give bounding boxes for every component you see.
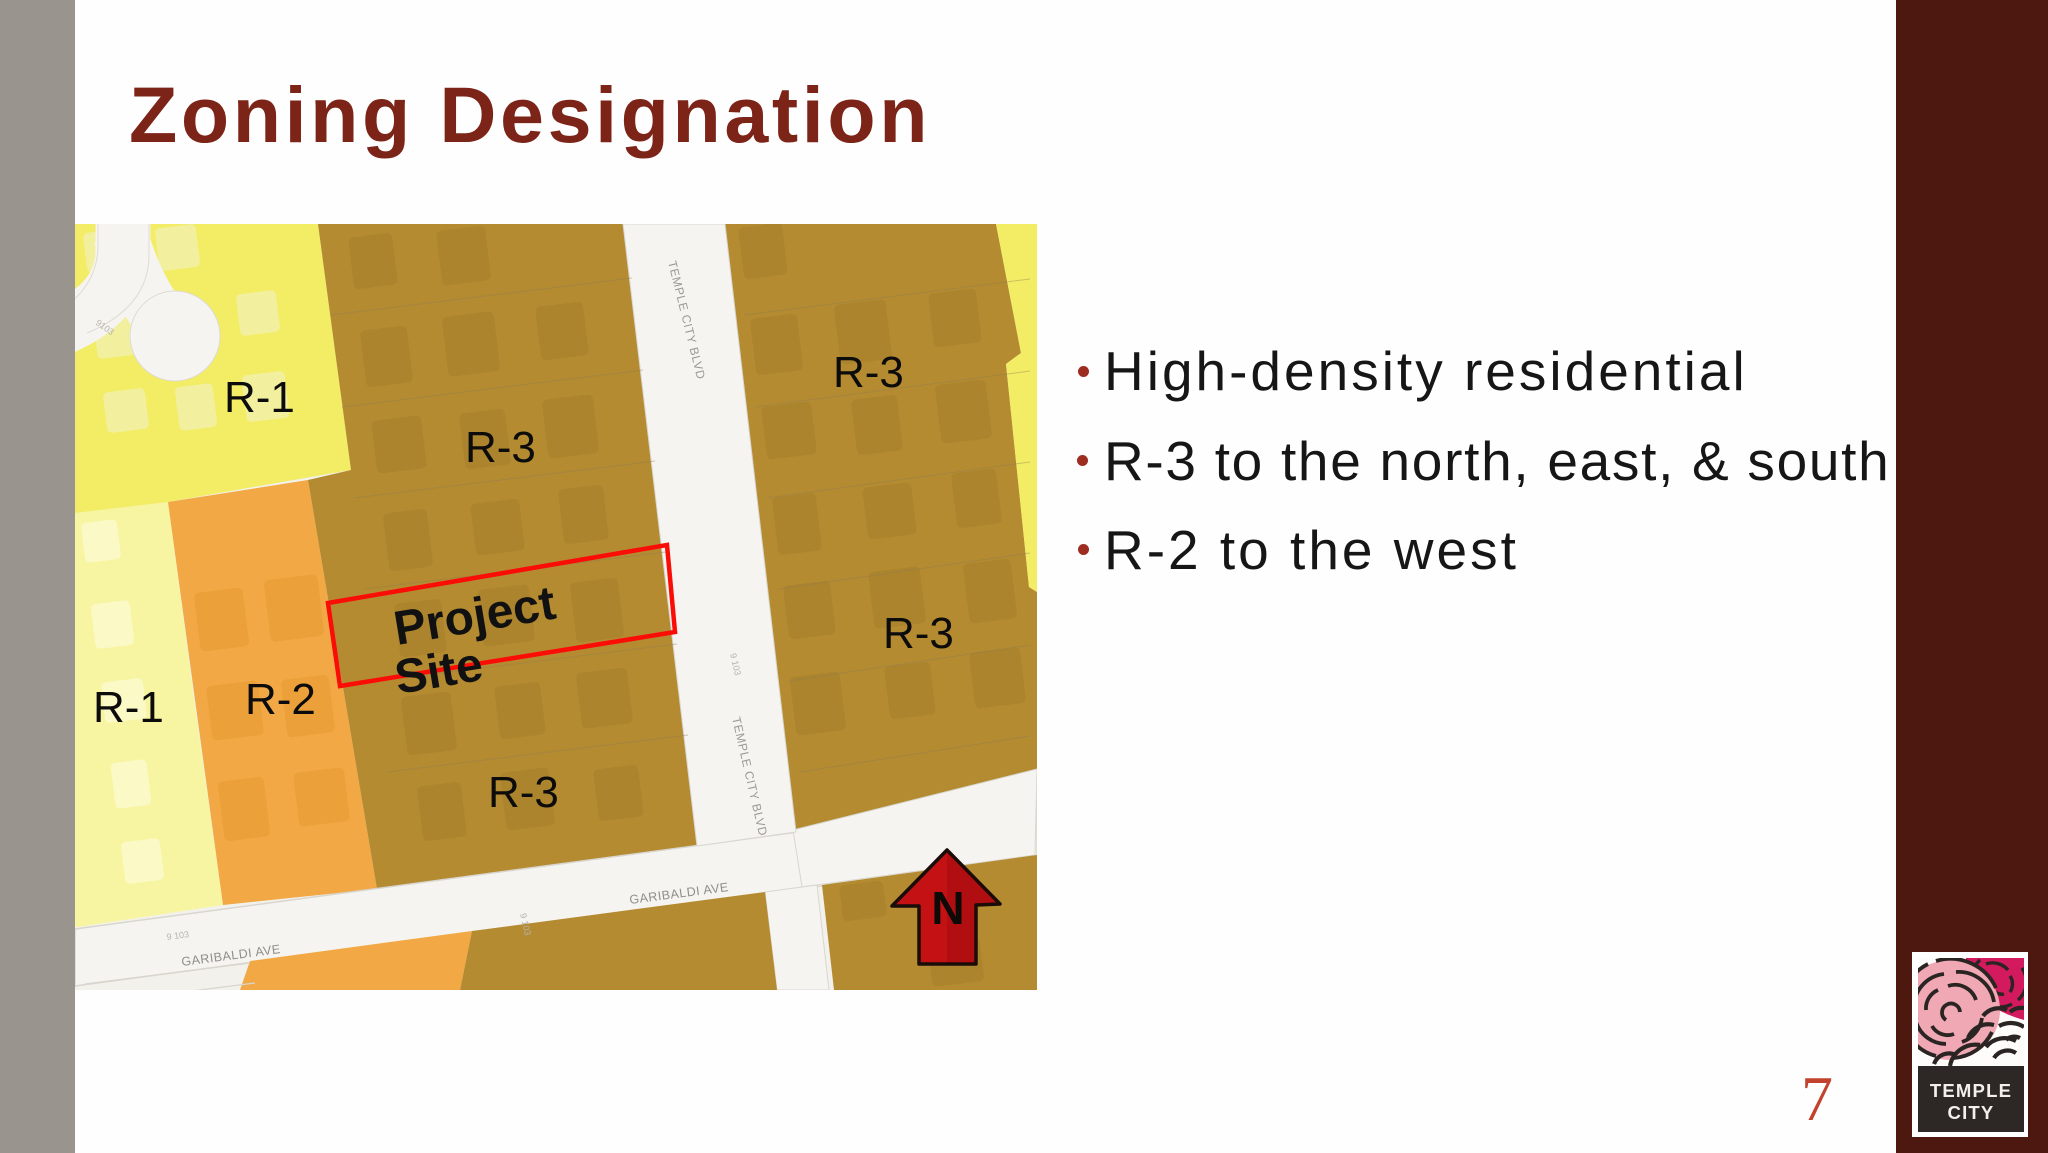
svg-text:R-3: R-3 (883, 609, 954, 658)
svg-text:R-1: R-1 (93, 683, 164, 732)
svg-text:R-3: R-3 (833, 348, 904, 397)
svg-text:N: N (931, 882, 964, 934)
svg-text:R-3: R-3 (465, 423, 536, 472)
svg-text:R-2: R-2 (245, 675, 316, 724)
svg-text:TEMPLE: TEMPLE (1930, 1080, 2012, 1101)
svg-text:CITY: CITY (1948, 1102, 1995, 1123)
svg-text:R-3: R-3 (488, 768, 559, 817)
svg-text:R-1: R-1 (224, 373, 295, 422)
